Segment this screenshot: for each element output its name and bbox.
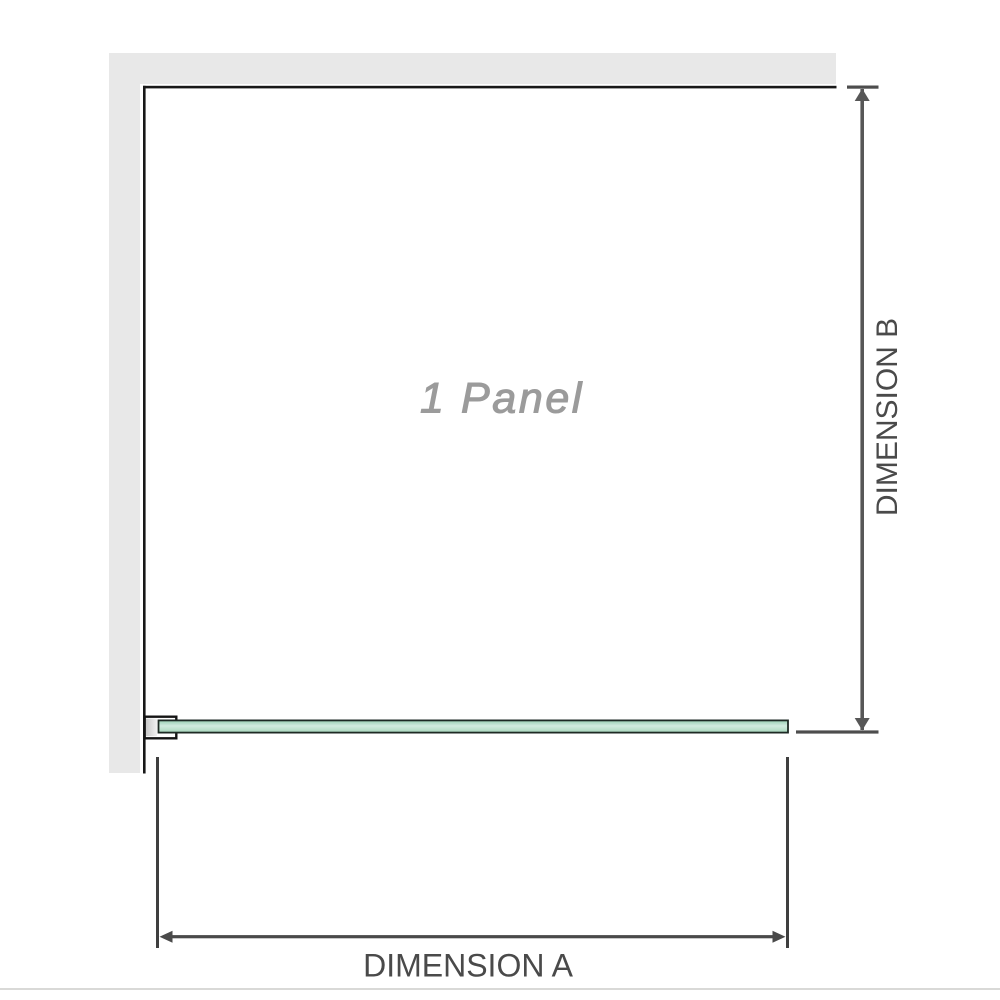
- svg-text:1 Panel: 1 Panel: [420, 375, 584, 423]
- svg-text:DIMENSION B: DIMENSION B: [871, 318, 904, 516]
- svg-text:DIMENSION A: DIMENSION A: [363, 947, 573, 983]
